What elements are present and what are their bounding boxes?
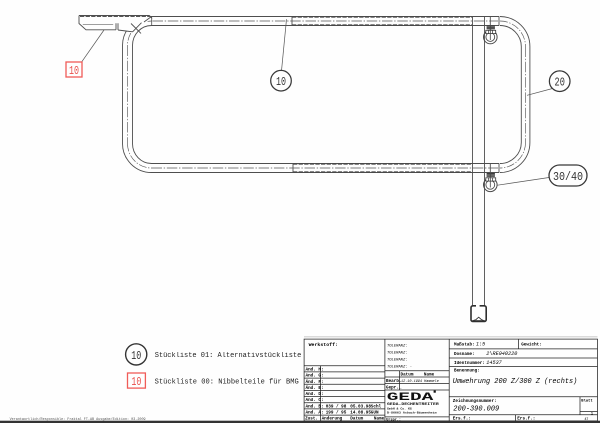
svg-text:Änd. H:: Änd. H:: [306, 367, 324, 372]
svg-text:Änd. F:: Änd. F:: [306, 380, 324, 385]
svg-text:Dosname:: Dosname:: [454, 352, 475, 357]
svg-text:Zeichnungsnummer:: Zeichnungsnummer:: [453, 399, 497, 404]
svg-text:Identnummer:: Identnummer:: [454, 361, 485, 366]
svg-text:20: 20: [555, 76, 565, 90]
svg-text:Stückliste 01: Alternativstück: Stückliste 01: Alternativstückliste: [155, 352, 302, 360]
svg-text:10: 10: [69, 64, 79, 78]
svg-text:Stückliste 00: Nibbelteile für: Stückliste 00: Nibbelteile für BMG: [155, 378, 299, 386]
svg-text:199 / 95: 199 / 95: [326, 411, 347, 416]
svg-text:14.08.95: 14.08.95: [350, 411, 371, 416]
svg-text:Bearb.: Bearb.: [386, 379, 401, 384]
svg-text:GmbH & Co. KG: GmbH & Co. KG: [387, 406, 412, 410]
svg-text:Änd. D:: Änd. D:: [306, 392, 324, 397]
svg-text:Schl: Schl: [371, 404, 382, 409]
svg-text:1:5: 1:5: [476, 340, 486, 347]
svg-text:10: 10: [131, 349, 141, 363]
svg-text:Name: Name: [424, 373, 435, 378]
svg-text:10: 10: [131, 375, 141, 389]
svg-text:12.10.1994 Hammele: 12.10.1994 Hammele: [401, 379, 439, 384]
svg-text:Gewicht:: Gewicht:: [521, 343, 542, 348]
svg-text:2\RE940220: 2\RE940220: [486, 350, 518, 357]
svg-text:10: 10: [276, 75, 286, 89]
svg-text:Maßstab:: Maßstab:: [454, 343, 475, 348]
svg-text:Umwehrung 200 Z/300 Z (rechts): Umwehrung 200 Z/300 Z (rechts): [453, 378, 578, 386]
svg-text:200-390.009: 200-390.009: [453, 406, 499, 414]
svg-text:14537: 14537: [486, 359, 502, 366]
svg-text:05.03.98: 05.03.98: [350, 404, 371, 409]
svg-text:Blatt: Blatt: [581, 399, 592, 404]
svg-text:039 / 98: 039 / 98: [326, 404, 347, 409]
svg-text:47: 47: [585, 417, 589, 421]
svg-text:TOLERANZ:: TOLERANZ:: [387, 344, 408, 348]
svg-text:Gepr._: Gepr._: [386, 386, 402, 391]
svg-text:30/40: 30/40: [553, 170, 583, 184]
svg-text:TOLERANZ:: TOLERANZ:: [387, 359, 408, 363]
svg-text:1: 1: [591, 411, 593, 415]
svg-text:Änd. E:: Änd. E:: [306, 386, 324, 391]
svg-text:GUN: GUN: [371, 411, 379, 416]
svg-text:Änd. G:: Änd. G:: [306, 374, 324, 379]
svg-text:Änd. B:: Änd. B:: [306, 404, 324, 409]
svg-text:TOLERANZ:: TOLERANZ:: [387, 352, 408, 356]
svg-text:Datum: Datum: [401, 373, 414, 378]
svg-text:Änd. A:: Änd. A:: [306, 411, 324, 416]
svg-text:D-86663 Asbach-Bäumenheim: D-86663 Asbach-Bäumenheim: [387, 411, 437, 415]
svg-text:TOLERANZ: -: TOLERANZ: -: [387, 366, 412, 370]
svg-text:Werkstoff:: Werkstoff:: [309, 342, 338, 348]
svg-text:Änd. C:: Änd. C:: [306, 398, 324, 403]
svg-text:GEDA-DECHENTREITER: GEDA-DECHENTREITER: [387, 403, 440, 407]
svg-text:Benennung:: Benennung:: [454, 369, 480, 374]
